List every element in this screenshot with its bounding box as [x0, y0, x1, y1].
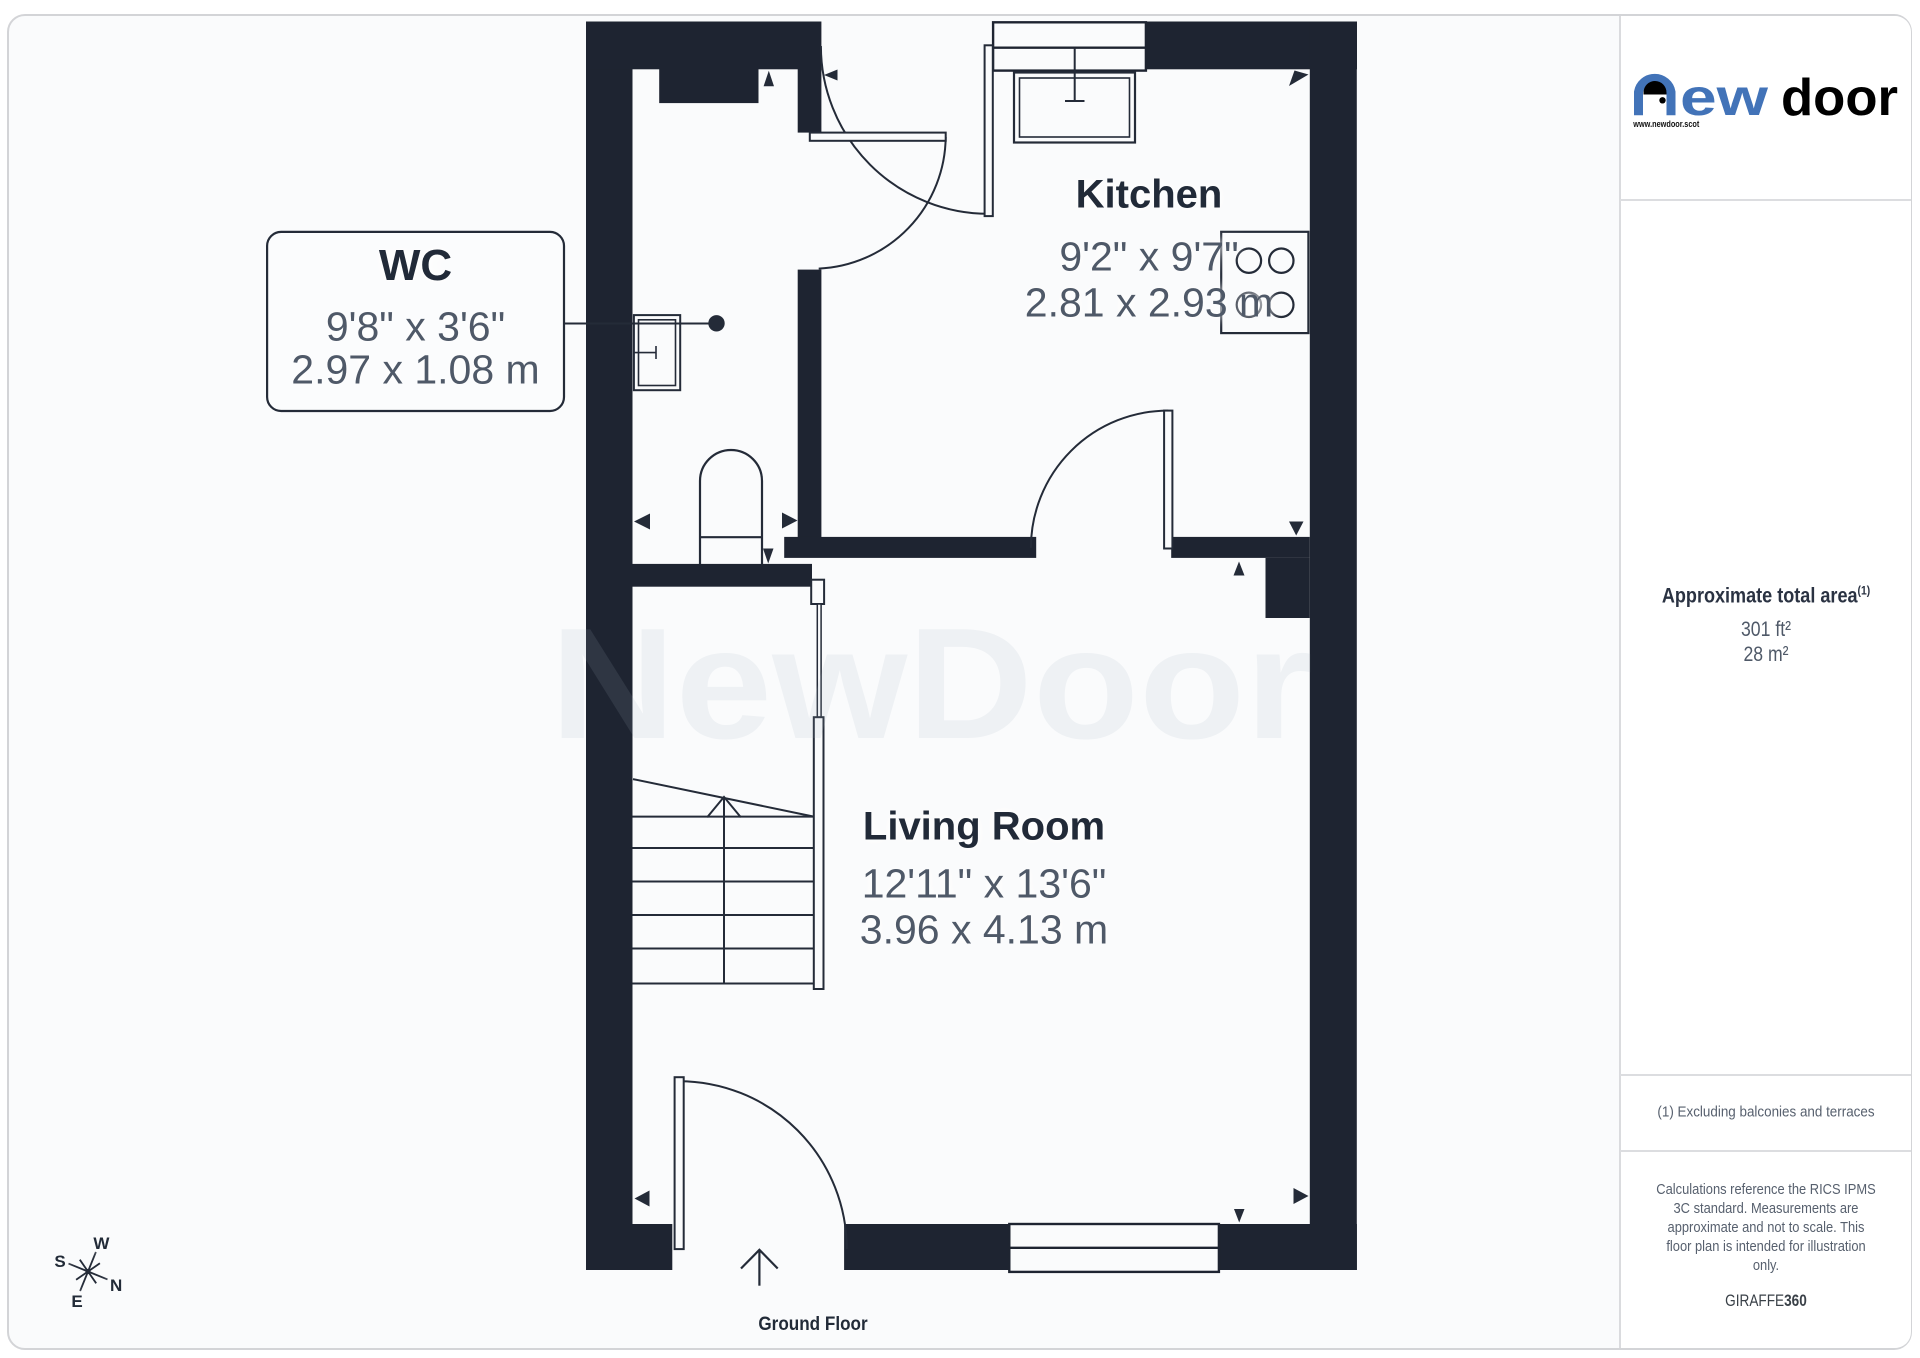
svg-text:www.newdoor.scot: www.newdoor.scot [1632, 119, 1699, 129]
svg-text:door: door [1781, 69, 1898, 127]
